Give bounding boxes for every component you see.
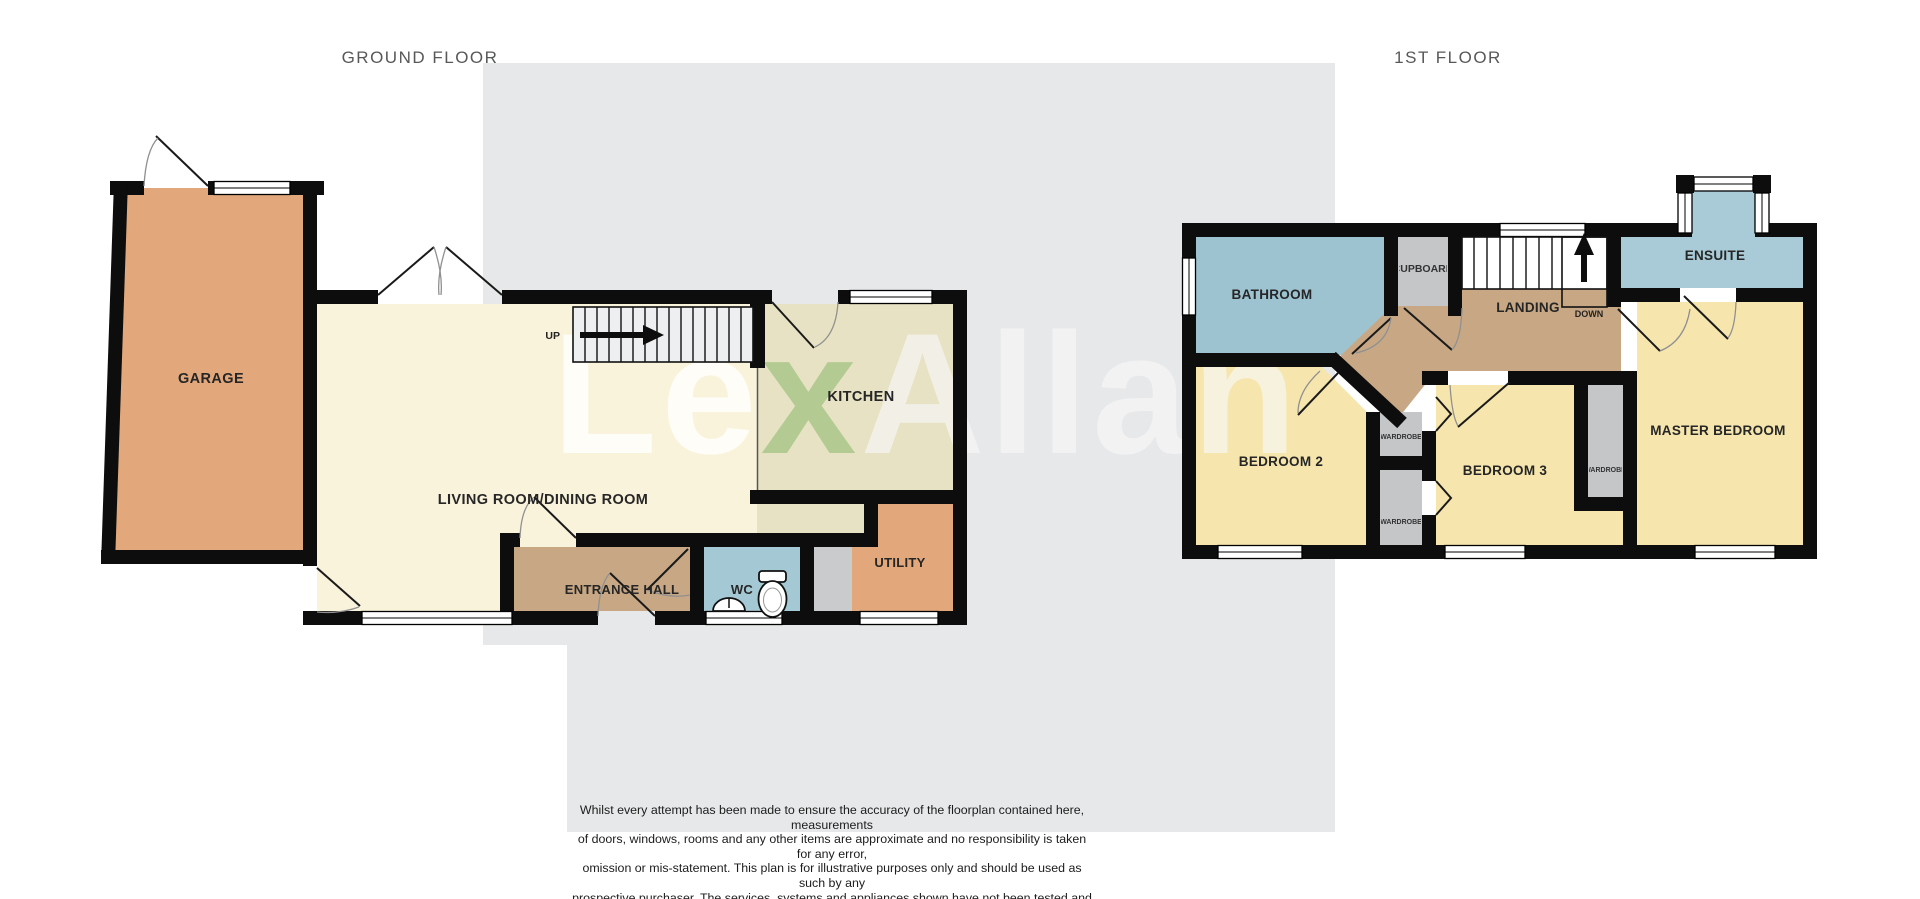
label-living: LIVING ROOM/DINING ROOM bbox=[438, 492, 649, 508]
first-window-midlines bbox=[1189, 184, 1775, 552]
wardrobe2-bifold bbox=[1436, 481, 1451, 515]
label-wardrobe3: WARDROBE bbox=[1584, 467, 1626, 474]
label-utility: UTILITY bbox=[874, 555, 925, 570]
bedroom3-door-leaf bbox=[1458, 382, 1510, 427]
bedroom2-door-arc bbox=[1298, 371, 1320, 413]
garage-entry-door-arc bbox=[144, 138, 158, 186]
label-wardrobe2: WARDROBE bbox=[1380, 519, 1422, 526]
master-door-leaf bbox=[1618, 309, 1660, 351]
kitchen-door-leaf bbox=[772, 302, 814, 348]
ground-stairs bbox=[573, 307, 753, 362]
structure-layer: GARAGE LIVING ROOM/DINING ROOM KITCHEN E… bbox=[0, 0, 1920, 899]
label-ensuite: ENSUITE bbox=[1685, 248, 1746, 263]
first-stairs bbox=[1462, 233, 1607, 307]
wardrobe1-bifold bbox=[1436, 397, 1451, 431]
disclaimer-line: of doors, windows, rooms and any other i… bbox=[572, 832, 1092, 861]
down-arrow-icon bbox=[1574, 233, 1594, 282]
garage-entry-door-leaf bbox=[156, 136, 208, 186]
cupboard-door-leaf bbox=[1404, 308, 1452, 350]
french-door-arc-right bbox=[439, 247, 446, 295]
disclaimer: Whilst every attempt has been made to en… bbox=[572, 803, 1092, 899]
label-bathroom: BATHROOM bbox=[1232, 287, 1313, 302]
label-kitchen: KITCHEN bbox=[827, 389, 894, 405]
label-master: MASTER BEDROOM bbox=[1650, 423, 1785, 438]
ensuite-door-arc bbox=[1728, 302, 1736, 338]
label-down: DOWN bbox=[1575, 309, 1604, 319]
label-entrance-hall: ENTRANCE HALL bbox=[565, 582, 679, 597]
label-bedroom2: BEDROOM 2 bbox=[1239, 454, 1323, 469]
label-up: UP bbox=[545, 330, 560, 342]
kitchen-door-arc bbox=[815, 302, 838, 347]
french-door-leaf-left bbox=[378, 247, 434, 295]
bedroom2-door-leaf bbox=[1298, 373, 1338, 415]
garage-living-door-leaf bbox=[317, 568, 360, 606]
label-landing: LANDING bbox=[1496, 300, 1560, 315]
bathroom-door-leaf bbox=[1352, 318, 1391, 354]
label-wc: WC bbox=[731, 582, 754, 597]
master-door-arc bbox=[1660, 309, 1690, 351]
ensuite-door-leaf bbox=[1684, 296, 1728, 339]
floorplan-page: GROUND FLOOR 1ST FLOOR LexAllan bbox=[0, 0, 1920, 899]
label-cupboard: CUPBOARD bbox=[1393, 263, 1454, 275]
label-bedroom3: BEDROOM 3 bbox=[1463, 463, 1548, 478]
disclaimer-line: Whilst every attempt has been made to en… bbox=[572, 803, 1092, 832]
french-door-leaf-right bbox=[446, 247, 502, 295]
disclaimer-line: prospective purchaser. The services, sys… bbox=[572, 891, 1092, 899]
first-doors bbox=[1298, 296, 1736, 515]
label-garage: GARAGE bbox=[178, 371, 244, 387]
disclaimer-line: omission or mis-statement. This plan is … bbox=[572, 861, 1092, 890]
label-wardrobe1: WARDROBE bbox=[1380, 434, 1422, 441]
bedroom3-door-arc bbox=[1450, 385, 1458, 426]
